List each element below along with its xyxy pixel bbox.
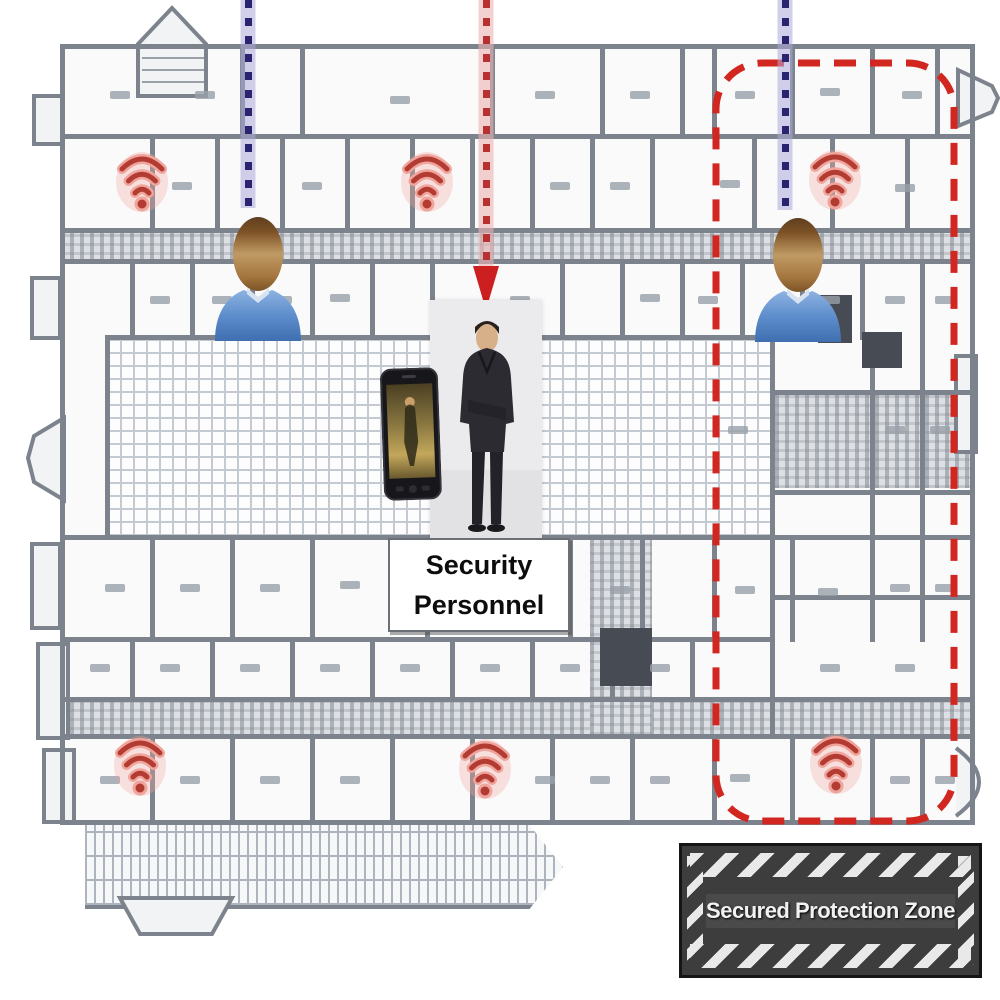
room-number-blob [110, 91, 130, 99]
stair-block [600, 628, 652, 686]
wall-segment [60, 44, 65, 825]
room-number-blob [390, 96, 410, 104]
wall-segment [712, 44, 717, 139]
wall-segment [560, 259, 565, 340]
floor-plan-canvas: Security Personnel Secured Protection Zo… [0, 0, 1000, 1000]
person-icon [751, 207, 846, 347]
room-number-blob [180, 776, 200, 784]
room-number-blob [180, 584, 200, 592]
wall-segment [60, 820, 973, 825]
room-number-blob [535, 776, 555, 784]
wall-segment [920, 259, 925, 340]
wall-segment [590, 134, 595, 233]
wifi-signal-icon [115, 152, 169, 219]
security-personnel-label-line2: Personnel [390, 585, 568, 626]
room-number-blob [885, 426, 905, 434]
room-number-blob [640, 294, 660, 302]
wall-segment [870, 535, 875, 642]
secured-protection-zone-sign: Secured Protection Zone [679, 843, 982, 978]
wall-segment [870, 734, 875, 825]
room-number-blob [935, 296, 955, 304]
wall-segment [310, 734, 315, 825]
wall-segment [920, 734, 925, 825]
wall-segment [650, 134, 655, 233]
wall-segment [970, 44, 975, 825]
wall-segment [870, 44, 875, 139]
corridor [60, 697, 973, 739]
wall-segment [390, 734, 395, 825]
wifi-signal-icon [113, 736, 167, 803]
wall-segment [690, 637, 695, 702]
left-bay [28, 418, 64, 500]
wall-segment [790, 535, 795, 642]
wall-segment [190, 259, 195, 340]
room-number-blob [260, 584, 280, 592]
room-number-blob [698, 296, 718, 304]
room-number-blob [172, 182, 192, 190]
wifi-signal-icon [458, 739, 512, 806]
room-number-blob [330, 294, 350, 302]
wall-segment [860, 259, 865, 340]
wall-segment [712, 734, 717, 825]
wall-segment [712, 535, 717, 642]
room-number-blob [195, 91, 215, 99]
stair-block [862, 332, 902, 368]
tracking-line-left [241, 0, 256, 208]
wifi-signal-icon [809, 734, 863, 801]
room-number-blob [895, 184, 915, 192]
room-number-blob [480, 664, 500, 672]
room-number-blob [895, 664, 915, 672]
wall-segment [630, 734, 635, 825]
room-number-blob [240, 664, 260, 672]
room-number-blob [340, 776, 360, 784]
room-number-blob [902, 91, 922, 99]
wall-segment [130, 637, 135, 702]
room-number-blob [400, 664, 420, 672]
wall-segment [790, 734, 795, 825]
room-number-blob [630, 91, 650, 99]
room-number-blob [818, 588, 838, 596]
wall-segment [105, 335, 110, 540]
room-number-blob [720, 180, 740, 188]
smartphone-icon [380, 367, 443, 506]
room-number-blob [535, 91, 555, 99]
wall-segment [935, 44, 940, 139]
room-number-blob [320, 664, 340, 672]
room-number-blob [935, 776, 955, 784]
wall-segment [470, 134, 475, 233]
alert-arrow-shaft [479, 0, 494, 266]
room-number-blob [550, 182, 570, 190]
wall-segment [530, 637, 535, 702]
room-number-blob [890, 776, 910, 784]
tracking-line-right [778, 0, 793, 210]
parking-hatch-area [85, 825, 563, 909]
wall-segment [300, 44, 305, 139]
wall-segment [680, 259, 685, 340]
room-number-blob [935, 584, 955, 592]
hazard-stripe-left [687, 856, 703, 965]
sign-label: Secured Protection Zone [706, 894, 955, 928]
room-number-blob [302, 182, 322, 190]
wall-segment [920, 335, 925, 540]
room-number-blob [820, 88, 840, 96]
room-number-blob [890, 584, 910, 592]
room-number-blob [650, 776, 670, 784]
room-number-blob [260, 776, 280, 784]
room-number-blob [728, 426, 748, 434]
wall-segment [620, 259, 625, 340]
room-number-blob [610, 182, 630, 190]
room-number-blob [820, 664, 840, 672]
wall-segment [370, 637, 375, 702]
room-number-blob [590, 776, 610, 784]
wall-segment [60, 697, 973, 702]
hazard-stripe-right [958, 856, 974, 965]
wall-segment [680, 44, 685, 139]
wall-segment [370, 259, 375, 340]
wall-segment [60, 637, 770, 642]
room-number-blob [560, 664, 580, 672]
person-icon [211, 206, 306, 346]
wall-segment [450, 637, 455, 702]
wall-segment [290, 637, 295, 702]
room-number-blob [610, 586, 630, 594]
wall-segment [60, 44, 973, 49]
wall-segment [345, 134, 350, 233]
wall-segment [640, 535, 645, 642]
wall-segment [530, 134, 535, 233]
wall-segment [150, 535, 155, 642]
room-number-blob [340, 581, 360, 589]
room-number-blob [650, 664, 670, 672]
wall-segment [310, 259, 315, 340]
room-number-blob [150, 296, 170, 304]
room-number-blob [735, 586, 755, 594]
security-personnel-label: Security Personnel [388, 538, 570, 632]
room-number-blob [105, 584, 125, 592]
wall-segment [230, 734, 235, 825]
wall-segment [230, 535, 235, 642]
security-guard-photo [430, 300, 542, 538]
room-number-blob [90, 664, 110, 672]
room-number-blob [730, 774, 750, 782]
wall-segment [130, 259, 135, 340]
room-number-blob [885, 296, 905, 304]
wall-segment [310, 535, 315, 642]
wall-segment [60, 134, 973, 139]
wall-segment [920, 535, 925, 642]
wall-segment [740, 259, 745, 340]
room-number-blob [160, 664, 180, 672]
security-personnel-label-line1: Security [390, 545, 568, 586]
room-number-blob [930, 426, 950, 434]
room-number-blob [735, 91, 755, 99]
hazard-stripe-top [690, 853, 971, 877]
wall-segment [600, 44, 605, 139]
wall-segment [210, 637, 215, 702]
hazard-stripe-bottom [690, 944, 971, 968]
wifi-signal-icon [400, 152, 454, 219]
wall-segment [770, 335, 775, 737]
